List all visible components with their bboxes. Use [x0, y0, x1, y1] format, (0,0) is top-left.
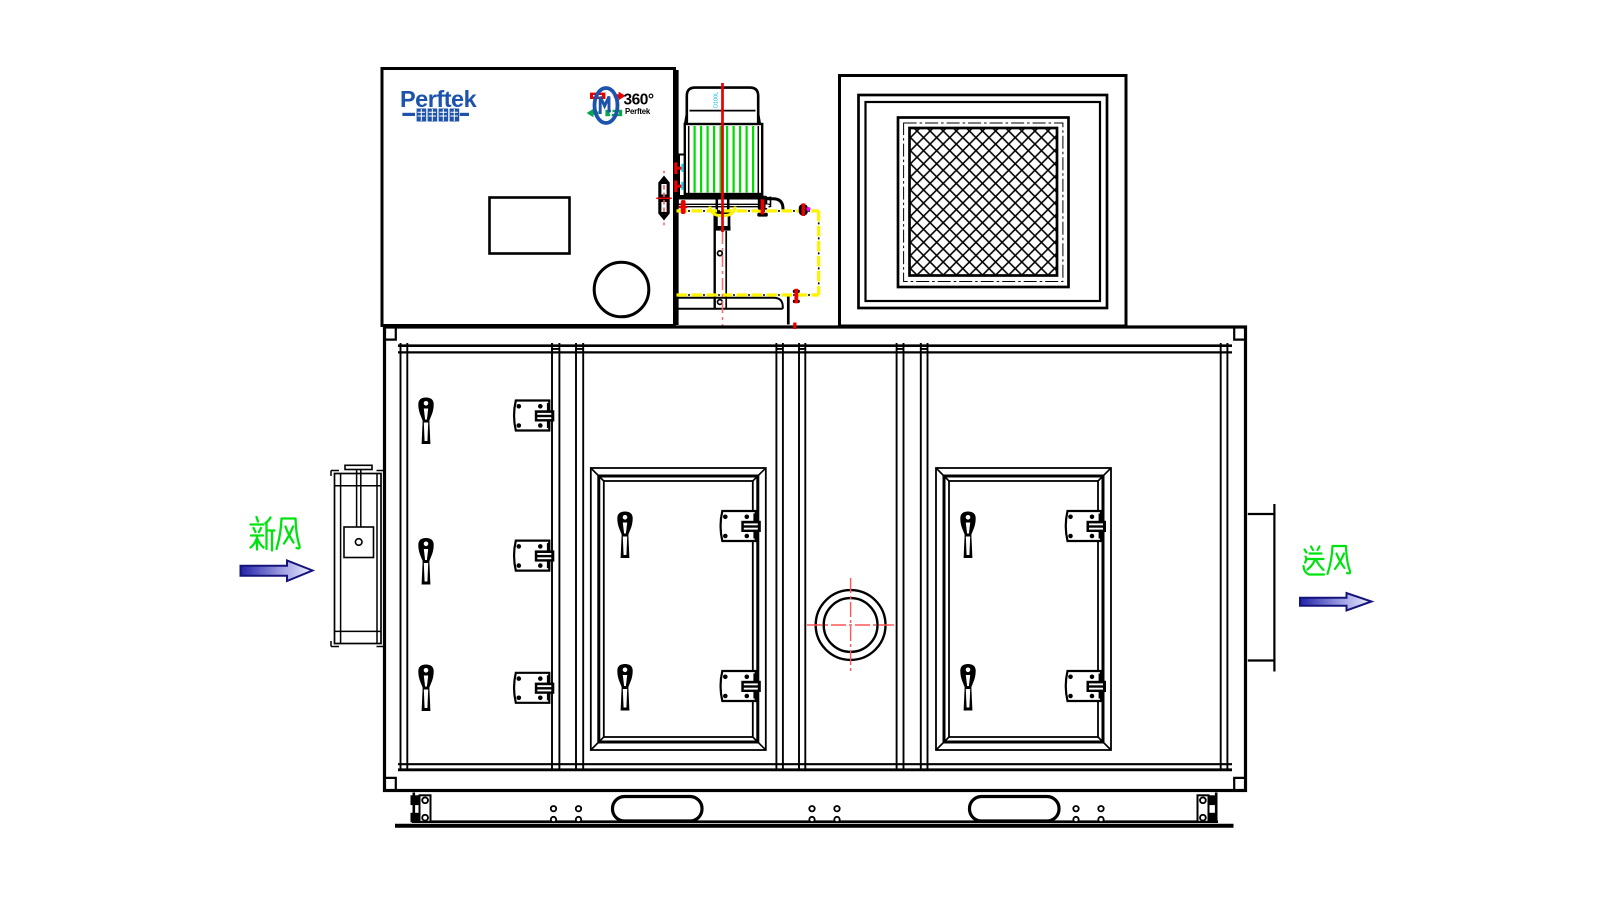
svg-text:D100L: D100L [714, 92, 720, 108]
svg-text:Perftek: Perftek [625, 107, 651, 116]
svg-text:Perftek: Perftek [400, 86, 478, 112]
